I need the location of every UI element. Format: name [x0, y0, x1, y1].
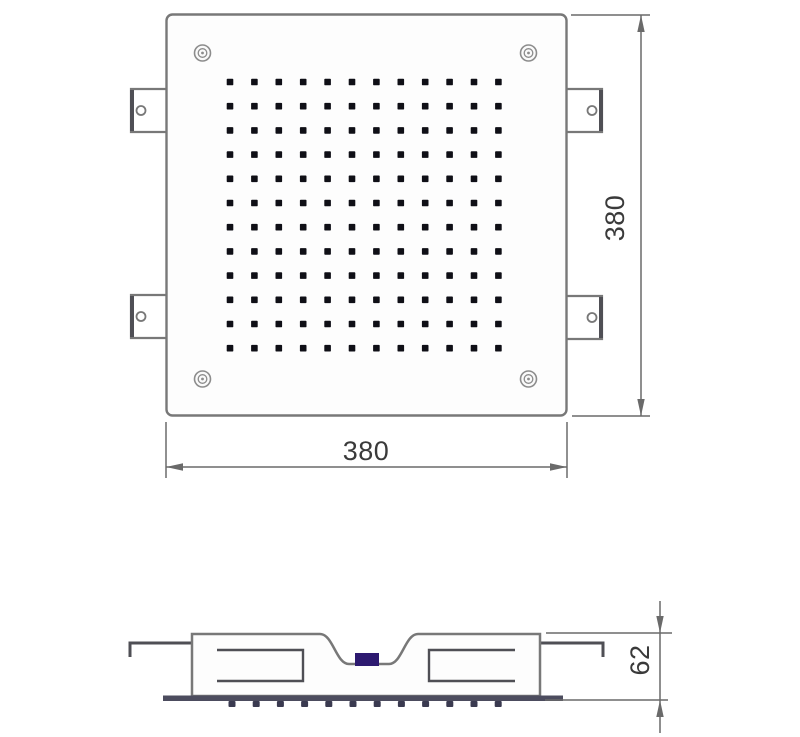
nozzle-icon — [373, 321, 380, 328]
nozzle-icon — [471, 103, 478, 110]
nozzle-icon — [227, 345, 234, 352]
nozzle-icon — [446, 224, 453, 231]
nozzle-icon — [398, 224, 405, 231]
nozzle-icon — [227, 248, 234, 255]
nozzle-icon — [227, 127, 234, 134]
nozzle-icon — [495, 176, 502, 183]
nozzle-icon — [446, 79, 453, 86]
nozzle-icon — [398, 297, 405, 304]
nozzle-icon — [300, 248, 307, 255]
nozzle-icon — [276, 297, 283, 304]
nozzle-icon — [349, 200, 356, 207]
nozzle-icon — [251, 224, 258, 231]
nozzle-icon — [349, 127, 356, 134]
nozzle-icon — [227, 200, 234, 207]
dimension-width-label: 380 — [343, 436, 390, 466]
nozzle-icon — [227, 272, 234, 279]
nozzle-icon — [422, 272, 429, 279]
nozzle-icon — [422, 297, 429, 304]
mounting-hook-right — [539, 643, 603, 657]
drawing-canvas: 380 380 62 — [0, 0, 800, 737]
nozzle-icon — [471, 321, 478, 328]
nozzle-icon — [422, 701, 429, 707]
nozzle-icon — [446, 151, 453, 158]
nozzle-icon — [495, 103, 502, 110]
nozzle-icon — [251, 176, 258, 183]
dimension-depth: 62 — [545, 601, 672, 733]
nozzle-icon — [276, 272, 283, 279]
nozzle-icon — [300, 79, 307, 86]
arrow-right-icon — [550, 463, 567, 470]
nozzle-icon — [495, 272, 502, 279]
corner-screw-icon — [521, 45, 537, 61]
mounting-bracket-top-left — [131, 89, 167, 132]
corner-screw-icon — [195, 371, 211, 387]
side-nozzle-row — [229, 701, 502, 707]
nozzle-icon — [471, 176, 478, 183]
nozzle-icon — [324, 151, 331, 158]
nozzle-icon — [422, 248, 429, 255]
nozzle-icon — [300, 127, 307, 134]
nozzle-icon — [227, 321, 234, 328]
nozzle-icon — [398, 272, 405, 279]
nozzle-icon — [349, 79, 356, 86]
nozzle-icon — [324, 248, 331, 255]
nozzle-icon — [300, 321, 307, 328]
nozzle-icon — [446, 321, 453, 328]
nozzle-icon — [349, 103, 356, 110]
nozzle-icon — [373, 176, 380, 183]
bracket-hole-icon — [588, 106, 597, 115]
nozzle-icon — [227, 151, 234, 158]
nozzle-icon — [373, 151, 380, 158]
nozzle-icon — [495, 248, 502, 255]
nozzle-icon — [422, 321, 429, 328]
nozzle-icon — [495, 200, 502, 207]
top-view — [131, 15, 602, 416]
nozzle-icon — [373, 103, 380, 110]
dimension-height: 380 — [571, 15, 650, 416]
nozzle-icon — [373, 345, 380, 352]
nozzle-icon — [495, 345, 502, 352]
nozzle-icon — [251, 297, 258, 304]
arrow-up-icon — [637, 15, 644, 32]
nozzle-icon — [398, 701, 405, 707]
nozzle-icon — [422, 103, 429, 110]
nozzle-icon — [422, 79, 429, 86]
nozzle-icon — [324, 127, 331, 134]
nozzle-icon — [471, 224, 478, 231]
nozzle-icon — [349, 297, 356, 304]
nozzle-icon — [349, 224, 356, 231]
nozzle-icon — [373, 127, 380, 134]
nozzle-icon — [300, 103, 307, 110]
bracket-hole-icon — [588, 313, 597, 322]
nozzle-icon — [398, 103, 405, 110]
bracket-hole-icon — [137, 106, 146, 115]
nozzle-icon — [422, 224, 429, 231]
nozzle-icon — [349, 151, 356, 158]
nozzle-icon — [398, 248, 405, 255]
nozzle-icon — [251, 321, 258, 328]
dimension-width: 380 — [166, 422, 567, 478]
nozzle-icon — [373, 79, 380, 86]
nozzle-icon — [324, 176, 331, 183]
nozzle-icon — [398, 200, 405, 207]
nozzle-icon — [446, 176, 453, 183]
nozzle-icon — [300, 272, 307, 279]
nozzle-icon — [251, 151, 258, 158]
nozzle-icon — [324, 272, 331, 279]
nozzle-icon — [276, 321, 283, 328]
nozzle-icon — [324, 345, 331, 352]
arrow-up-icon — [656, 700, 663, 717]
nozzle-icon — [398, 345, 405, 352]
nozzle-icon — [227, 297, 234, 304]
nozzle-icon — [300, 200, 307, 207]
nozzle-icon — [422, 176, 429, 183]
mounting-hook-left — [130, 643, 193, 657]
nozzle-icon — [374, 701, 381, 707]
dimension-height-label: 380 — [600, 195, 630, 242]
nozzle-icon — [276, 248, 283, 255]
nozzle-icon — [373, 224, 380, 231]
nozzle-icon — [495, 297, 502, 304]
nozzle-icon — [471, 151, 478, 158]
nozzle-icon — [350, 701, 357, 707]
nozzle-icon — [471, 345, 478, 352]
corner-screw-icon — [195, 45, 211, 61]
nozzle-icon — [373, 272, 380, 279]
mounting-bracket-bottom-left — [131, 295, 167, 338]
nozzle-icon — [276, 103, 283, 110]
nozzle-icon — [495, 79, 502, 86]
nozzle-icon — [495, 151, 502, 158]
nozzle-icon — [495, 224, 502, 231]
nozzle-icon — [471, 272, 478, 279]
nozzle-icon — [300, 151, 307, 158]
nozzle-icon — [277, 701, 284, 707]
nozzle-icon — [324, 79, 331, 86]
water-inlet-connector — [355, 653, 379, 666]
nozzle-icon — [324, 321, 331, 328]
nozzle-icon — [349, 176, 356, 183]
nozzle-icon — [446, 103, 453, 110]
nozzle-icon — [446, 248, 453, 255]
nozzle-icon — [398, 127, 405, 134]
nozzle-icon — [446, 200, 453, 207]
nozzle-icon — [349, 345, 356, 352]
nozzle-icon — [373, 200, 380, 207]
nozzle-icon — [422, 200, 429, 207]
nozzle-icon — [495, 127, 502, 134]
arrow-left-icon — [166, 463, 183, 470]
nozzle-icon — [300, 176, 307, 183]
nozzle-icon — [324, 200, 331, 207]
spray-baseplate — [163, 696, 563, 702]
nozzle-icon — [227, 79, 234, 86]
nozzle-icon — [398, 79, 405, 86]
nozzle-icon — [251, 345, 258, 352]
shower-plate — [167, 15, 567, 416]
arrow-down-icon — [637, 399, 644, 416]
nozzle-icon — [251, 248, 258, 255]
nozzle-icon — [471, 200, 478, 207]
nozzle-icon — [227, 224, 234, 231]
nozzle-icon — [325, 701, 332, 707]
nozzle-icon — [276, 79, 283, 86]
nozzle-icon — [251, 127, 258, 134]
nozzle-icon — [398, 321, 405, 328]
nozzle-icon — [300, 345, 307, 352]
nozzle-icon — [300, 297, 307, 304]
nozzle-icon — [373, 297, 380, 304]
nozzle-icon — [471, 79, 478, 86]
nozzle-icon — [276, 151, 283, 158]
nozzle-icon — [446, 345, 453, 352]
technical-drawing: 380 380 62 — [0, 0, 800, 737]
nozzle-icon — [251, 272, 258, 279]
nozzle-icon — [373, 248, 380, 255]
nozzle-icon — [446, 127, 453, 134]
corner-screw-icon — [521, 371, 537, 387]
nozzle-icon — [349, 321, 356, 328]
side-view — [130, 634, 603, 707]
nozzle-icon — [276, 127, 283, 134]
nozzle-icon — [227, 176, 234, 183]
nozzle-icon — [495, 321, 502, 328]
nozzle-icon — [227, 103, 234, 110]
nozzle-icon — [301, 701, 308, 707]
nozzle-icon — [251, 79, 258, 86]
nozzle-icon — [349, 272, 356, 279]
nozzle-icon — [422, 127, 429, 134]
nozzle-icon — [253, 701, 260, 707]
bracket-hole-icon — [137, 312, 146, 321]
nozzle-icon — [471, 297, 478, 304]
nozzle-icon — [229, 701, 236, 707]
nozzle-icon — [276, 200, 283, 207]
arrow-down-icon — [656, 616, 663, 633]
nozzle-icon — [495, 701, 502, 707]
nozzle-icon — [422, 151, 429, 158]
nozzle-icon — [398, 176, 405, 183]
nozzle-icon — [398, 151, 405, 158]
nozzle-icon — [446, 272, 453, 279]
nozzle-icon — [324, 297, 331, 304]
nozzle-icon — [324, 224, 331, 231]
nozzle-icon — [446, 297, 453, 304]
nozzle-icon — [251, 200, 258, 207]
nozzle-icon — [300, 224, 307, 231]
nozzle-icon — [276, 224, 283, 231]
nozzle-icon — [251, 103, 258, 110]
dimension-depth-label: 62 — [625, 644, 655, 675]
nozzle-icon — [276, 176, 283, 183]
nozzle-icon — [276, 345, 283, 352]
mounting-bracket-bottom-right — [566, 296, 602, 339]
nozzle-icon — [471, 248, 478, 255]
nozzle-icon — [471, 127, 478, 134]
nozzle-icon — [349, 248, 356, 255]
nozzle-icon — [446, 701, 453, 707]
nozzle-icon — [324, 103, 331, 110]
mounting-bracket-top-right — [566, 89, 602, 132]
nozzle-icon — [471, 701, 478, 707]
nozzle-icon — [422, 345, 429, 352]
